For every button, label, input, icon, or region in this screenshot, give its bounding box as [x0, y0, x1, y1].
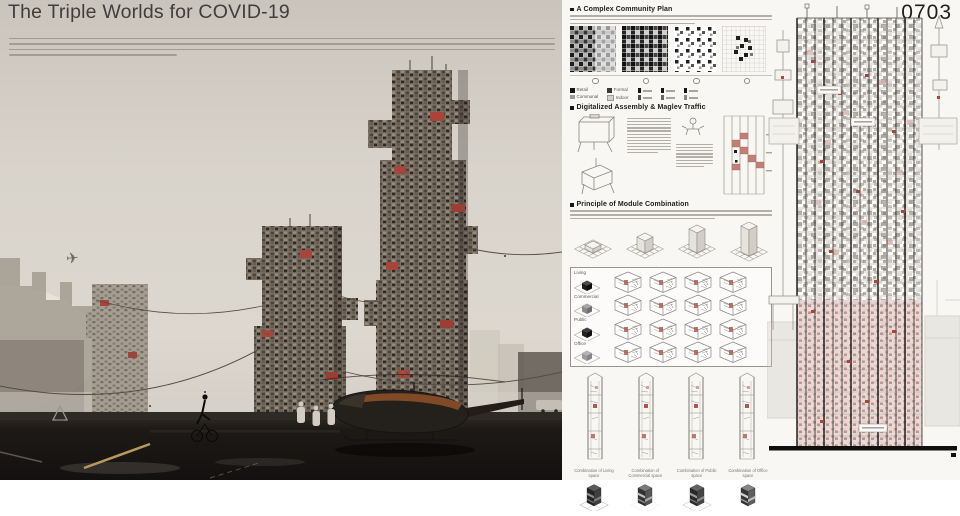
module-row-commercial: Commercial [574, 294, 768, 318]
bullet-icon [570, 106, 574, 110]
body-text-column [627, 114, 671, 198]
text-line [570, 19, 772, 21]
text-line [570, 214, 772, 216]
text-line [570, 23, 695, 25]
base-iso-diagrams [570, 222, 772, 264]
module-solid-cube-icon [574, 276, 600, 294]
text-line [676, 156, 713, 157]
community-plan-grid-2 [622, 26, 668, 72]
corner-mark [951, 453, 956, 457]
bullet-icon [570, 203, 574, 207]
text-line [676, 166, 703, 167]
text-line [627, 127, 671, 128]
bullet-icon [570, 8, 574, 12]
module-cube-icon [613, 318, 643, 341]
module-cube-icon [648, 294, 678, 317]
tower-stack-diagram-3 [683, 371, 709, 463]
intro-paragraph [9, 34, 555, 60]
text-line [570, 210, 772, 212]
text-line [627, 124, 671, 125]
tower-stack-diagrams [570, 371, 772, 463]
combination-caption: Combination of Commercial space [621, 468, 669, 478]
text-line [570, 218, 715, 220]
community-plan-grid-3 [674, 26, 716, 72]
legend-label: Indoor [616, 96, 629, 101]
legend-swatch [684, 88, 687, 93]
legend-swatch [570, 88, 575, 93]
module-cube-icon [683, 341, 713, 364]
voxel-tower-icon-4 [731, 479, 765, 511]
combination-item: Combination of Commercial space [621, 468, 669, 516]
module-cube-icon [613, 271, 643, 294]
community-plan-grids [570, 26, 772, 72]
competition-board: ✈ [0, 0, 960, 480]
legend-label-bar [689, 97, 698, 99]
module-row-public: Public [574, 317, 768, 341]
text-line [676, 153, 713, 154]
legend-group: Formal Indoor [607, 88, 628, 101]
section-drawing-canvas [767, 0, 960, 480]
plan-markers [570, 75, 772, 84]
module-row-office: Office [574, 341, 768, 365]
tower-stack-diagram-2 [633, 371, 659, 463]
ground-line [769, 446, 957, 451]
legend-label: Retail [577, 88, 589, 93]
text-line [9, 49, 555, 51]
legend-swatch [638, 88, 641, 93]
left-service-tower [769, 30, 799, 330]
legend-label: Communal [577, 95, 599, 100]
combination-item: Combination of Office space [724, 468, 772, 516]
tower-stack-diagram-1 [582, 371, 608, 463]
roof-antennas [805, 4, 897, 18]
legend-label-bar [666, 90, 675, 92]
combination-caption: Combination of Living space [570, 468, 618, 478]
poster-title: The Triple Worlds for COVID-19 [8, 1, 290, 24]
legend-swatch [684, 95, 687, 100]
marker-icon [693, 78, 700, 85]
board-left-column: A Complex Community Plan [570, 3, 772, 516]
module-solid-cube-icon [574, 323, 600, 341]
heading-text: Digitalized Assembly & Maglev Traffic [577, 104, 706, 111]
marker-icon [744, 78, 751, 85]
module-cube-icon [718, 294, 748, 317]
legend-swatch [661, 88, 664, 93]
module-cube-icon [718, 271, 748, 294]
marker-icon [592, 78, 599, 85]
legend-label: Formal [614, 88, 628, 93]
module-row-living: Living [574, 270, 768, 294]
text-line [9, 43, 555, 45]
base-iso-diagram-1 [570, 222, 616, 264]
text-line [627, 134, 671, 135]
voxel-tower-icon-2 [628, 479, 662, 511]
tower-second [246, 214, 358, 428]
ground [0, 412, 562, 480]
text-line [627, 118, 671, 119]
marker-icon [643, 78, 650, 85]
presentation-board: A Complex Community Plan [562, 0, 960, 480]
heading-text: Principle of Module Combination [577, 201, 689, 208]
voxel-tower-icon-3 [680, 479, 714, 511]
legend-group [661, 88, 675, 100]
body-text-column [676, 114, 713, 198]
community-plan-grid-4 [722, 26, 766, 72]
text-line [9, 38, 555, 40]
community-legend: Retail Communal Formal Indoor [570, 88, 772, 101]
base-iso-diagram-3 [674, 222, 720, 264]
text-line [627, 121, 671, 122]
module-cube-icon [648, 318, 678, 341]
module-matrix: Living Commercial [570, 267, 772, 367]
maglev-cab-sketch [676, 115, 710, 137]
module-cube-icon [613, 341, 643, 364]
combination-item: Combination of Public space [673, 468, 721, 516]
module-solid-cube-icon [574, 299, 600, 317]
module-cube-icon [718, 318, 748, 341]
voxel-tower-icon-1 [577, 479, 611, 511]
module-cube-icon [718, 341, 748, 364]
tower-stack-diagram-4 [734, 371, 760, 463]
section-heading-community: A Complex Community Plan [570, 6, 772, 13]
text-line [627, 152, 658, 153]
text-line [676, 147, 713, 148]
combination-caption: Combination of Public space [673, 468, 721, 478]
base-iso-diagram-4 [726, 222, 772, 264]
legend-group [638, 88, 652, 100]
heading-text: A Complex Community Plan [577, 6, 673, 13]
module-cube-icon [648, 271, 678, 294]
module-cube-icon [613, 294, 643, 317]
assembly-sketches [570, 114, 622, 198]
assembly-content [570, 114, 772, 198]
text-line [627, 137, 671, 138]
section-heading-module: Principle of Module Combination [570, 201, 772, 208]
legend-swatch [607, 95, 614, 102]
text-line [627, 149, 671, 150]
text-line [627, 143, 671, 144]
section-building [797, 4, 922, 447]
text-line [676, 150, 713, 151]
text-line [627, 130, 671, 131]
text-line [676, 163, 713, 164]
combination-caption: Combination of Office space [724, 468, 772, 478]
legend-swatch [661, 95, 664, 100]
hero-rendering: ✈ [0, 0, 562, 480]
text-line [627, 146, 671, 147]
legend-group [684, 88, 698, 100]
airplane-icon: ✈ [65, 250, 79, 268]
legend-swatch [570, 95, 575, 100]
text-line [570, 15, 772, 17]
legend-swatch [607, 88, 612, 93]
legend-swatch [638, 95, 641, 100]
text-line [676, 160, 713, 161]
community-plan-grid-1 [570, 26, 616, 72]
maglev-strip-diagram [718, 114, 772, 196]
building-section-drawing: 0703 [767, 0, 960, 480]
legend-label-bar [689, 90, 698, 92]
text-line [9, 54, 177, 56]
combination-item: Combination of Living space [570, 468, 618, 516]
module-cube-icon [683, 318, 713, 341]
assembly-sketch-1 [570, 114, 622, 154]
rendering-scene: ✈ [0, 0, 562, 480]
legend-label-bar [666, 97, 675, 99]
text-line [627, 140, 671, 141]
section-heading-assembly: Digitalized Assembly & Maglev Traffic [570, 104, 772, 111]
tower-left [86, 284, 148, 420]
module-cube-icon [683, 294, 713, 317]
module-solid-cube-icon [574, 346, 600, 364]
combination-row: Combination of Living space Combination … [570, 468, 772, 516]
text-line [676, 144, 713, 145]
legend-label-bar [643, 97, 652, 99]
module-cube-icon [683, 271, 713, 294]
module-cube-icon [648, 341, 678, 364]
base-iso-diagram-2 [622, 222, 668, 264]
legend-group: Retail Communal [570, 88, 598, 99]
legend-label-bar [643, 90, 652, 92]
assembly-sketch-2 [570, 158, 622, 196]
